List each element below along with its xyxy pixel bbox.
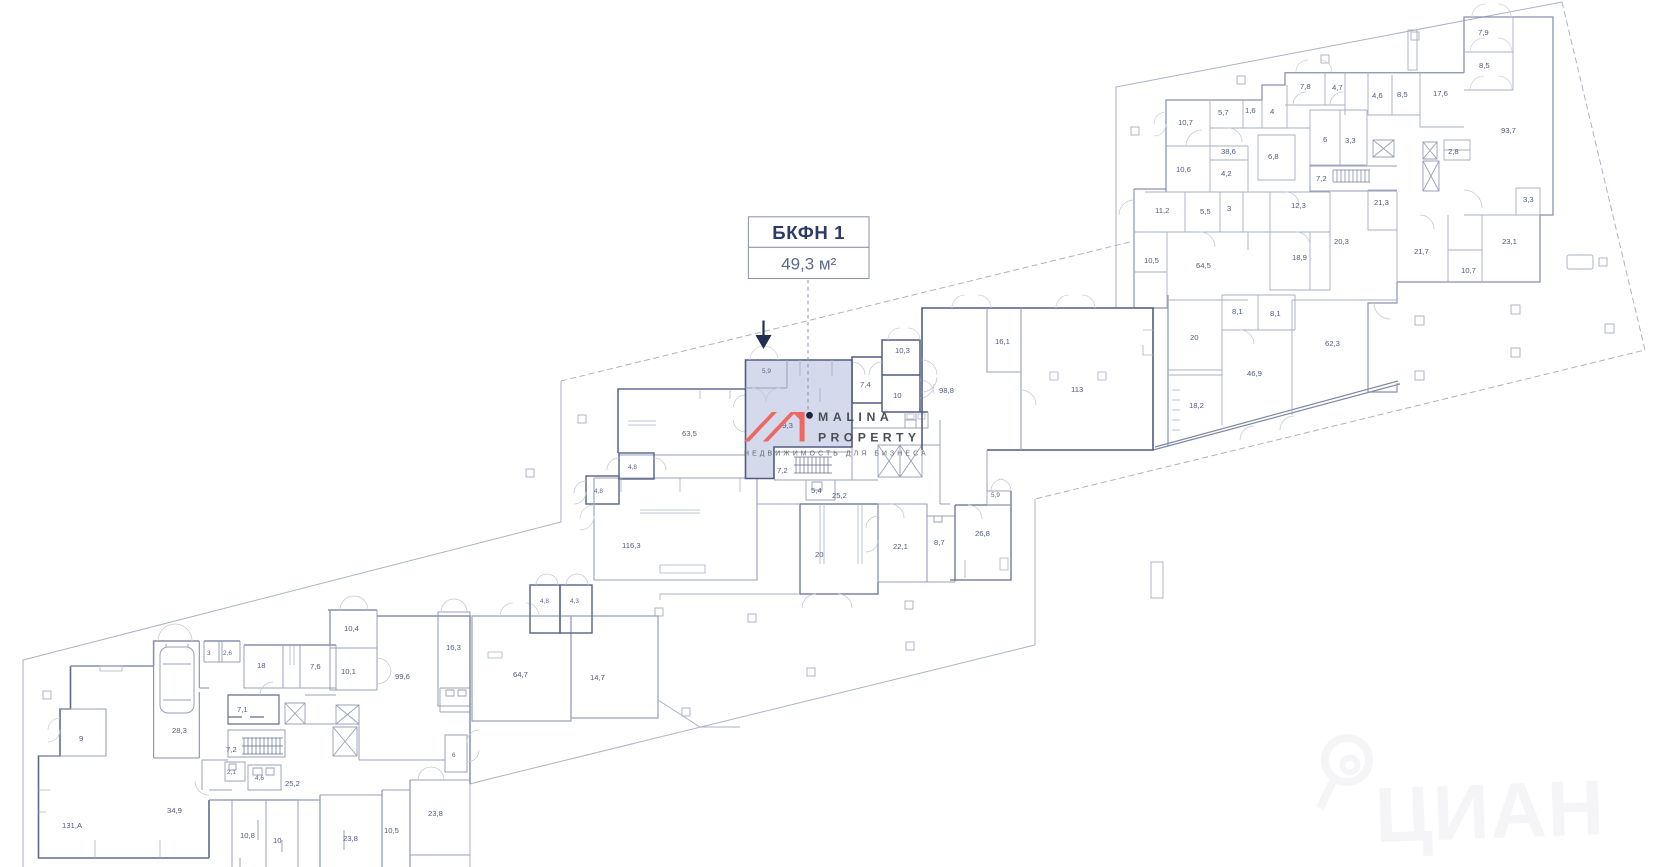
svg-text:3,3: 3,3: [1523, 195, 1534, 204]
svg-text:99,6: 99,6: [395, 672, 410, 681]
svg-text:10: 10: [273, 836, 282, 845]
svg-text:10: 10: [893, 391, 902, 400]
svg-text:38,6: 38,6: [1221, 147, 1236, 156]
svg-text:5,9: 5,9: [762, 368, 771, 375]
svg-text:8,1: 8,1: [1270, 309, 1281, 318]
svg-text:MALINA: MALINA: [818, 410, 893, 424]
svg-text:7,8: 7,8: [1300, 82, 1311, 91]
svg-text:11,2: 11,2: [1155, 206, 1169, 215]
svg-text:2,6: 2,6: [223, 650, 232, 657]
svg-text:4,8: 4,8: [594, 488, 603, 495]
svg-text:4,8: 4,8: [540, 598, 549, 605]
svg-text:23,1: 23,1: [1502, 237, 1517, 246]
svg-text:10,7: 10,7: [1178, 118, 1193, 127]
svg-text:16,1: 16,1: [995, 337, 1010, 346]
svg-text:БКФН 1: БКФН 1: [772, 222, 845, 243]
svg-text:17,6: 17,6: [1433, 89, 1448, 98]
svg-text:4,8: 4,8: [628, 464, 637, 471]
svg-text:10,6: 10,6: [1176, 165, 1191, 174]
svg-text:10,5: 10,5: [384, 826, 399, 835]
svg-text:20: 20: [1190, 333, 1199, 342]
svg-text:113: 113: [1071, 385, 1083, 394]
svg-text:4: 4: [1270, 107, 1275, 116]
svg-text:7,9: 7,9: [1478, 28, 1489, 37]
svg-text:23,8: 23,8: [428, 809, 443, 818]
svg-text:34,9: 34,9: [167, 806, 182, 815]
svg-text:7,2: 7,2: [777, 466, 788, 475]
svg-text:131,А: 131,А: [62, 821, 83, 830]
svg-text:10,7: 10,7: [1461, 266, 1476, 275]
svg-text:22,1: 22,1: [893, 542, 908, 551]
svg-text:5,9: 5,9: [991, 492, 1000, 499]
svg-text:3: 3: [207, 650, 211, 657]
svg-text:7,4: 7,4: [860, 380, 871, 389]
svg-text:98,8: 98,8: [939, 386, 954, 395]
svg-text:10,5: 10,5: [1144, 256, 1159, 265]
svg-text:7,6: 7,6: [310, 662, 321, 671]
svg-text:62,3: 62,3: [1325, 339, 1340, 348]
svg-text:21,3: 21,3: [1374, 198, 1389, 207]
svg-text:4,6: 4,6: [255, 775, 264, 782]
svg-text:23,8: 23,8: [343, 834, 358, 843]
svg-text:28,3: 28,3: [172, 726, 187, 735]
svg-text:8,5: 8,5: [1479, 61, 1490, 70]
svg-text:2,8: 2,8: [1448, 147, 1459, 156]
svg-text:93,7: 93,7: [1501, 126, 1516, 135]
svg-text:10,8: 10,8: [240, 831, 255, 840]
svg-text:64,7: 64,7: [513, 670, 528, 679]
svg-text:7,1: 7,1: [237, 705, 248, 714]
svg-text:21,7: 21,7: [1414, 247, 1429, 256]
svg-text:8,1: 8,1: [1232, 307, 1243, 316]
svg-text:46,9: 46,9: [1247, 369, 1262, 378]
svg-text:5,4: 5,4: [811, 486, 822, 495]
svg-text:16,3: 16,3: [446, 643, 461, 652]
svg-text:18,2: 18,2: [1189, 401, 1204, 410]
svg-text:9: 9: [79, 734, 83, 743]
svg-text:7,2: 7,2: [1316, 174, 1327, 183]
svg-text:5,5: 5,5: [1200, 207, 1211, 216]
svg-text:116,3: 116,3: [622, 541, 641, 550]
svg-text:ЦИАН: ЦИАН: [1374, 763, 1607, 859]
svg-text:4,3: 4,3: [570, 598, 579, 605]
svg-text:7,2: 7,2: [226, 745, 237, 754]
svg-text:12,3: 12,3: [1291, 201, 1306, 210]
svg-text:6: 6: [1323, 135, 1327, 144]
svg-text:63,5: 63,5: [682, 429, 697, 438]
svg-text:PROPERTY: PROPERTY: [818, 430, 920, 444]
svg-text:1,6: 1,6: [1245, 106, 1256, 115]
svg-text:4,7: 4,7: [1332, 83, 1343, 92]
svg-text:20: 20: [815, 550, 824, 559]
svg-text:10,1: 10,1: [341, 667, 356, 676]
svg-text:3,3: 3,3: [1345, 136, 1356, 145]
svg-text:3: 3: [1227, 204, 1231, 213]
svg-text:20,3: 20,3: [1334, 237, 1349, 246]
svg-text:6: 6: [452, 752, 456, 759]
svg-text:26,8: 26,8: [975, 529, 990, 538]
svg-text:2,1: 2,1: [227, 769, 236, 776]
svg-text:6,8: 6,8: [1268, 152, 1279, 161]
svg-text:8,5: 8,5: [1397, 90, 1408, 99]
svg-text:64,5: 64,5: [1196, 261, 1211, 270]
svg-text:8,7: 8,7: [934, 538, 945, 547]
svg-text:НЕДВИЖИМОСТЬ ДЛЯ БИЗНЕСА: НЕДВИЖИМОСТЬ ДЛЯ БИЗНЕСА: [744, 451, 929, 458]
svg-text:49,3 м²: 49,3 м²: [781, 255, 836, 274]
svg-text:10,4: 10,4: [344, 624, 360, 633]
svg-text:18,9: 18,9: [1292, 253, 1307, 262]
svg-text:25,2: 25,2: [285, 779, 300, 788]
svg-text:25,2: 25,2: [832, 491, 847, 500]
svg-text:18: 18: [257, 661, 266, 670]
svg-text:14,7: 14,7: [590, 673, 605, 682]
svg-text:10,3: 10,3: [895, 346, 910, 355]
svg-text:5,7: 5,7: [1218, 108, 1229, 117]
svg-text:4,2: 4,2: [1221, 169, 1232, 178]
svg-text:4,6: 4,6: [1372, 91, 1383, 100]
